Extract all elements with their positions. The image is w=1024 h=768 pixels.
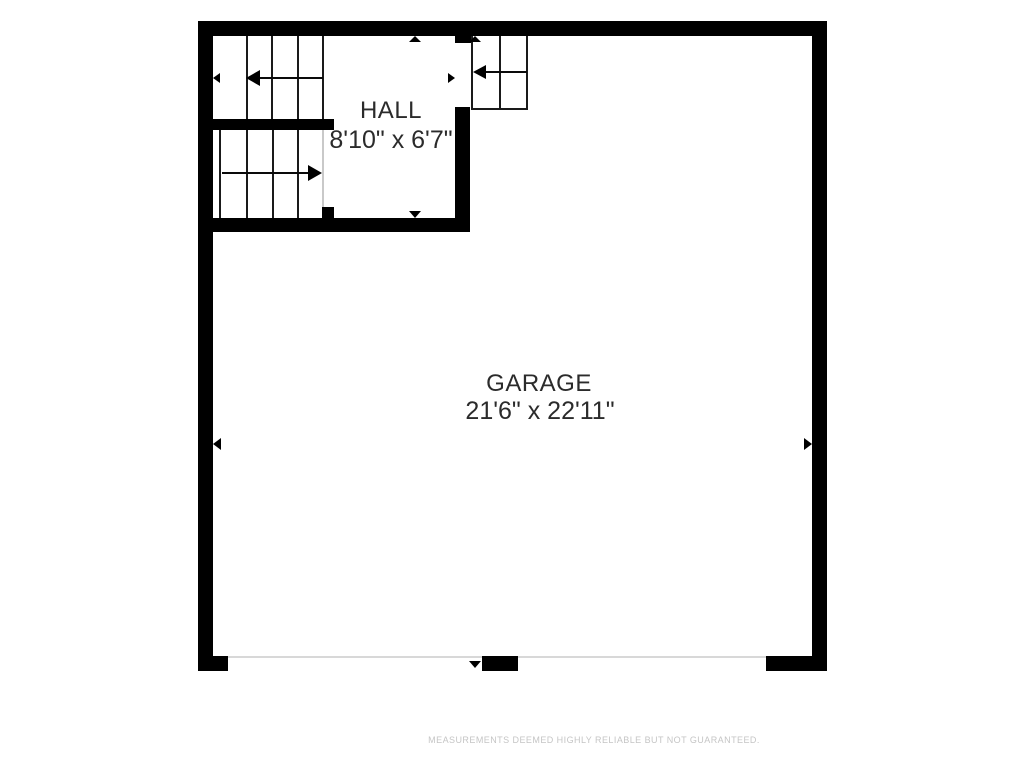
winder-bottom-line [471,108,528,110]
garage-door-opening-left [228,656,482,658]
winder-mid-line [499,36,501,110]
hall-dim-marker-left-icon [213,73,220,83]
floor-plan: HALL 8'10" x 6'7" GARAGE 21'6" x 22'11" … [0,0,1024,768]
hall-room-dimensions: 8'10" x 6'7" [329,126,452,154]
stair-bottom-stub [322,207,334,218]
garage-dim-marker-up-icon [469,36,481,42]
stair-down-arrow-icon [308,165,322,181]
stair-tread-line [272,130,274,218]
wall-top [198,21,827,36]
stair-arrow-shaft [480,71,527,73]
hall-dim-marker-right-icon [448,73,455,83]
hall-bottom-wall [198,218,470,232]
hall-right-wall [455,107,470,218]
wall-bottom-left-segment [198,656,228,671]
hall-dim-marker-up-icon [409,36,421,42]
measurements-disclaimer: MEASUREMENTS DEEMED HIGHLY RELIABLE BUT … [428,735,760,745]
stair-tread-line [219,130,221,218]
stair-tread-line [246,130,248,218]
hall-room-label: HALL [360,97,422,125]
hall-dim-marker-down-icon [409,211,421,218]
winder-arrow-icon [473,65,486,79]
garage-door-opening-right [518,656,766,658]
stair-arrow-shaft [222,172,309,174]
wall-right [812,21,827,671]
wall-bottom-right-segment [766,656,827,671]
stair-edge-line-faint [322,130,324,207]
garage-room-dimensions: 21'6" x 22'11" [465,397,614,425]
garage-dim-marker-left-icon [213,438,221,450]
garage-room-label: GARAGE [486,370,592,398]
stair-mid-wall [198,119,334,130]
stair-up-arrow-icon [246,70,260,86]
stair-tread-line [297,130,299,218]
garage-dim-marker-down-icon [469,661,481,668]
winder-edge-right [526,36,528,110]
stair-arrow-shaft [254,77,323,79]
wall-bottom-center-segment [482,656,518,671]
garage-dim-marker-right-icon [804,438,812,450]
